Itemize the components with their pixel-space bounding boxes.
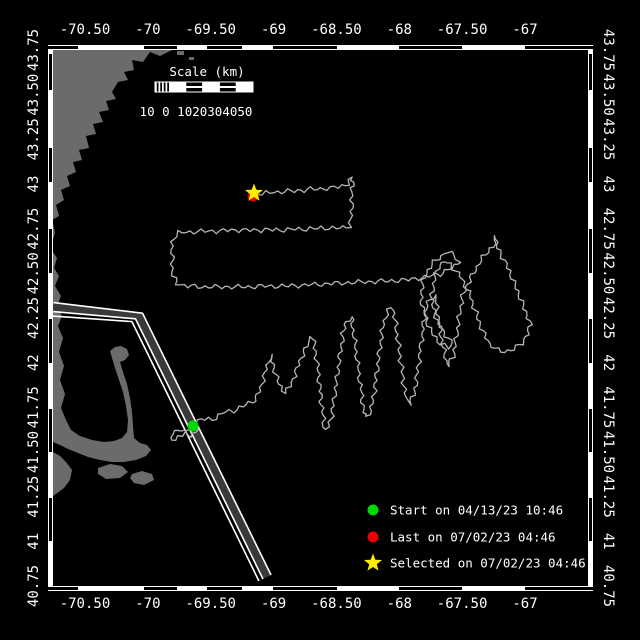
lat-label-right: 43.50 xyxy=(600,74,616,116)
land-polygon xyxy=(52,50,172,240)
legend-marker-selected xyxy=(364,554,382,571)
lon-label-top: -67 xyxy=(512,22,537,38)
frame-tick-segment xyxy=(273,46,337,49)
frame-tick-segment xyxy=(207,587,242,590)
lat-label-left: 43 xyxy=(26,176,42,193)
land-polygon xyxy=(53,452,72,496)
lat-label-left: 42.50 xyxy=(26,252,42,294)
land-polygon xyxy=(98,464,128,479)
frame-tick-segment xyxy=(273,587,337,590)
legend-label: Last on 07/02/23 04:46 xyxy=(390,530,556,545)
scalebar-hatch-cell xyxy=(162,82,164,92)
lat-label-right: 41.50 xyxy=(600,431,616,473)
scalebar: Scale (km) 10 0 1020304050 xyxy=(140,64,253,119)
lat-label-left: 41 xyxy=(26,533,42,550)
lat-label-left: 43.25 xyxy=(26,118,42,160)
scalebar-numbers: 10 0 1020304050 xyxy=(140,104,253,119)
lon-label-top: -68 xyxy=(387,22,412,38)
lat-label-left: 42 xyxy=(26,354,42,371)
lat-label-left: 42.75 xyxy=(26,208,42,250)
lat-label-left: 41.50 xyxy=(26,431,42,473)
frame-tick-segment xyxy=(49,319,52,363)
lon-label-bottom: -67.50 xyxy=(437,596,488,612)
frame-tick-segment xyxy=(49,54,52,90)
frame-tick-segment xyxy=(144,46,177,49)
scalebar-bar xyxy=(155,82,253,92)
scalebar-hatch-cell xyxy=(166,82,168,92)
glider-track-layer xyxy=(170,177,532,440)
land-polygon xyxy=(189,57,194,60)
lon-label-bottom: -70 xyxy=(135,596,160,612)
legend: Start on 04/13/23 10:46Last on 07/02/23 … xyxy=(364,503,586,571)
lat-label-right: 42.75 xyxy=(600,208,616,250)
frame-tick-segment xyxy=(144,587,177,590)
lat-label-right: 42.25 xyxy=(600,297,616,339)
scalebar-segment-solid xyxy=(203,82,220,92)
frame-tick-segment xyxy=(589,229,592,273)
legend-marker-last xyxy=(368,532,379,543)
map-window: -70.50-70.50-70-70-69.50-69.50-69-69-68.… xyxy=(0,0,640,640)
frame-tick-segment xyxy=(207,46,242,49)
scalebar-segment-solid xyxy=(169,82,186,92)
lat-label-left: 43.50 xyxy=(26,74,42,116)
frame-tick-segment xyxy=(525,46,593,49)
lat-label-right: 42.50 xyxy=(600,252,616,294)
lat-label-right: 41.75 xyxy=(600,386,616,428)
lon-label-top: -67.50 xyxy=(437,22,488,38)
legend-marker-start xyxy=(368,505,379,516)
lat-label-left: 42.25 xyxy=(26,297,42,339)
lat-label-right: 40.75 xyxy=(600,565,616,607)
frame-tick-segment xyxy=(589,409,592,452)
frame-tick-segment xyxy=(589,498,592,541)
frame-tick-segment xyxy=(589,319,592,363)
lon-label-top: -70 xyxy=(135,22,160,38)
scalebar-title: Scale (km) xyxy=(169,64,244,79)
lon-label-top: -70.50 xyxy=(60,22,111,38)
frame-tick-segment xyxy=(399,46,462,49)
lat-label-left: 43.75 xyxy=(26,29,42,71)
track-markers xyxy=(188,184,264,432)
lon-label-top: -69.50 xyxy=(185,22,236,38)
scalebar-hatch-cell xyxy=(155,82,157,92)
frame-tick-segment xyxy=(589,54,592,90)
lat-label-right: 43.75 xyxy=(600,29,616,71)
scalebar-segment-stripe xyxy=(186,86,203,88)
frame-tick-segment xyxy=(48,46,78,49)
lat-label-right: 43.25 xyxy=(600,118,616,160)
lat-label-left: 41.75 xyxy=(26,386,42,428)
frame-tick-segment xyxy=(49,148,52,182)
frame-tick-segment xyxy=(525,587,593,590)
scalebar-segment-stripe xyxy=(219,86,236,88)
lon-label-top: -68.50 xyxy=(311,22,362,38)
lon-label-bottom: -68 xyxy=(387,596,412,612)
legend-label: Selected on 07/02/23 04:46 xyxy=(390,556,586,571)
lat-label-left: 40.75 xyxy=(26,565,42,607)
land-polygon xyxy=(130,471,154,485)
legend-label: Start on 04/13/23 10:46 xyxy=(390,503,563,518)
lat-label-right: 41.25 xyxy=(600,476,616,518)
lat-label-right: 42 xyxy=(600,354,616,371)
frame-tick-segment xyxy=(49,409,52,452)
frame-tick-segment xyxy=(399,587,462,590)
lon-label-top: -69 xyxy=(261,22,286,38)
land-polygon xyxy=(177,51,184,55)
frame-tick-segment xyxy=(49,229,52,273)
lon-label-bottom: -67 xyxy=(512,596,537,612)
map-plot: -70.50-70.50-70-70-69.50-69.50-69-69-68.… xyxy=(0,0,640,640)
lat-label-right: 41 xyxy=(600,533,616,550)
land-polygon xyxy=(53,252,151,462)
lon-label-bottom: -69.50 xyxy=(185,596,236,612)
glider-track xyxy=(170,177,532,440)
lat-label-right: 43 xyxy=(600,176,616,193)
lon-label-bottom: -68.50 xyxy=(311,596,362,612)
scalebar-segment-solid xyxy=(236,82,253,92)
frame-tick-segment xyxy=(48,587,78,590)
start-marker xyxy=(188,421,199,432)
scalebar-hatch-cell xyxy=(159,82,161,92)
lat-label-left: 41.25 xyxy=(26,476,42,518)
lon-label-bottom: -70.50 xyxy=(60,596,111,612)
frame-tick-segment xyxy=(589,148,592,182)
lon-label-bottom: -69 xyxy=(261,596,286,612)
frame-tick-segment xyxy=(49,498,52,541)
